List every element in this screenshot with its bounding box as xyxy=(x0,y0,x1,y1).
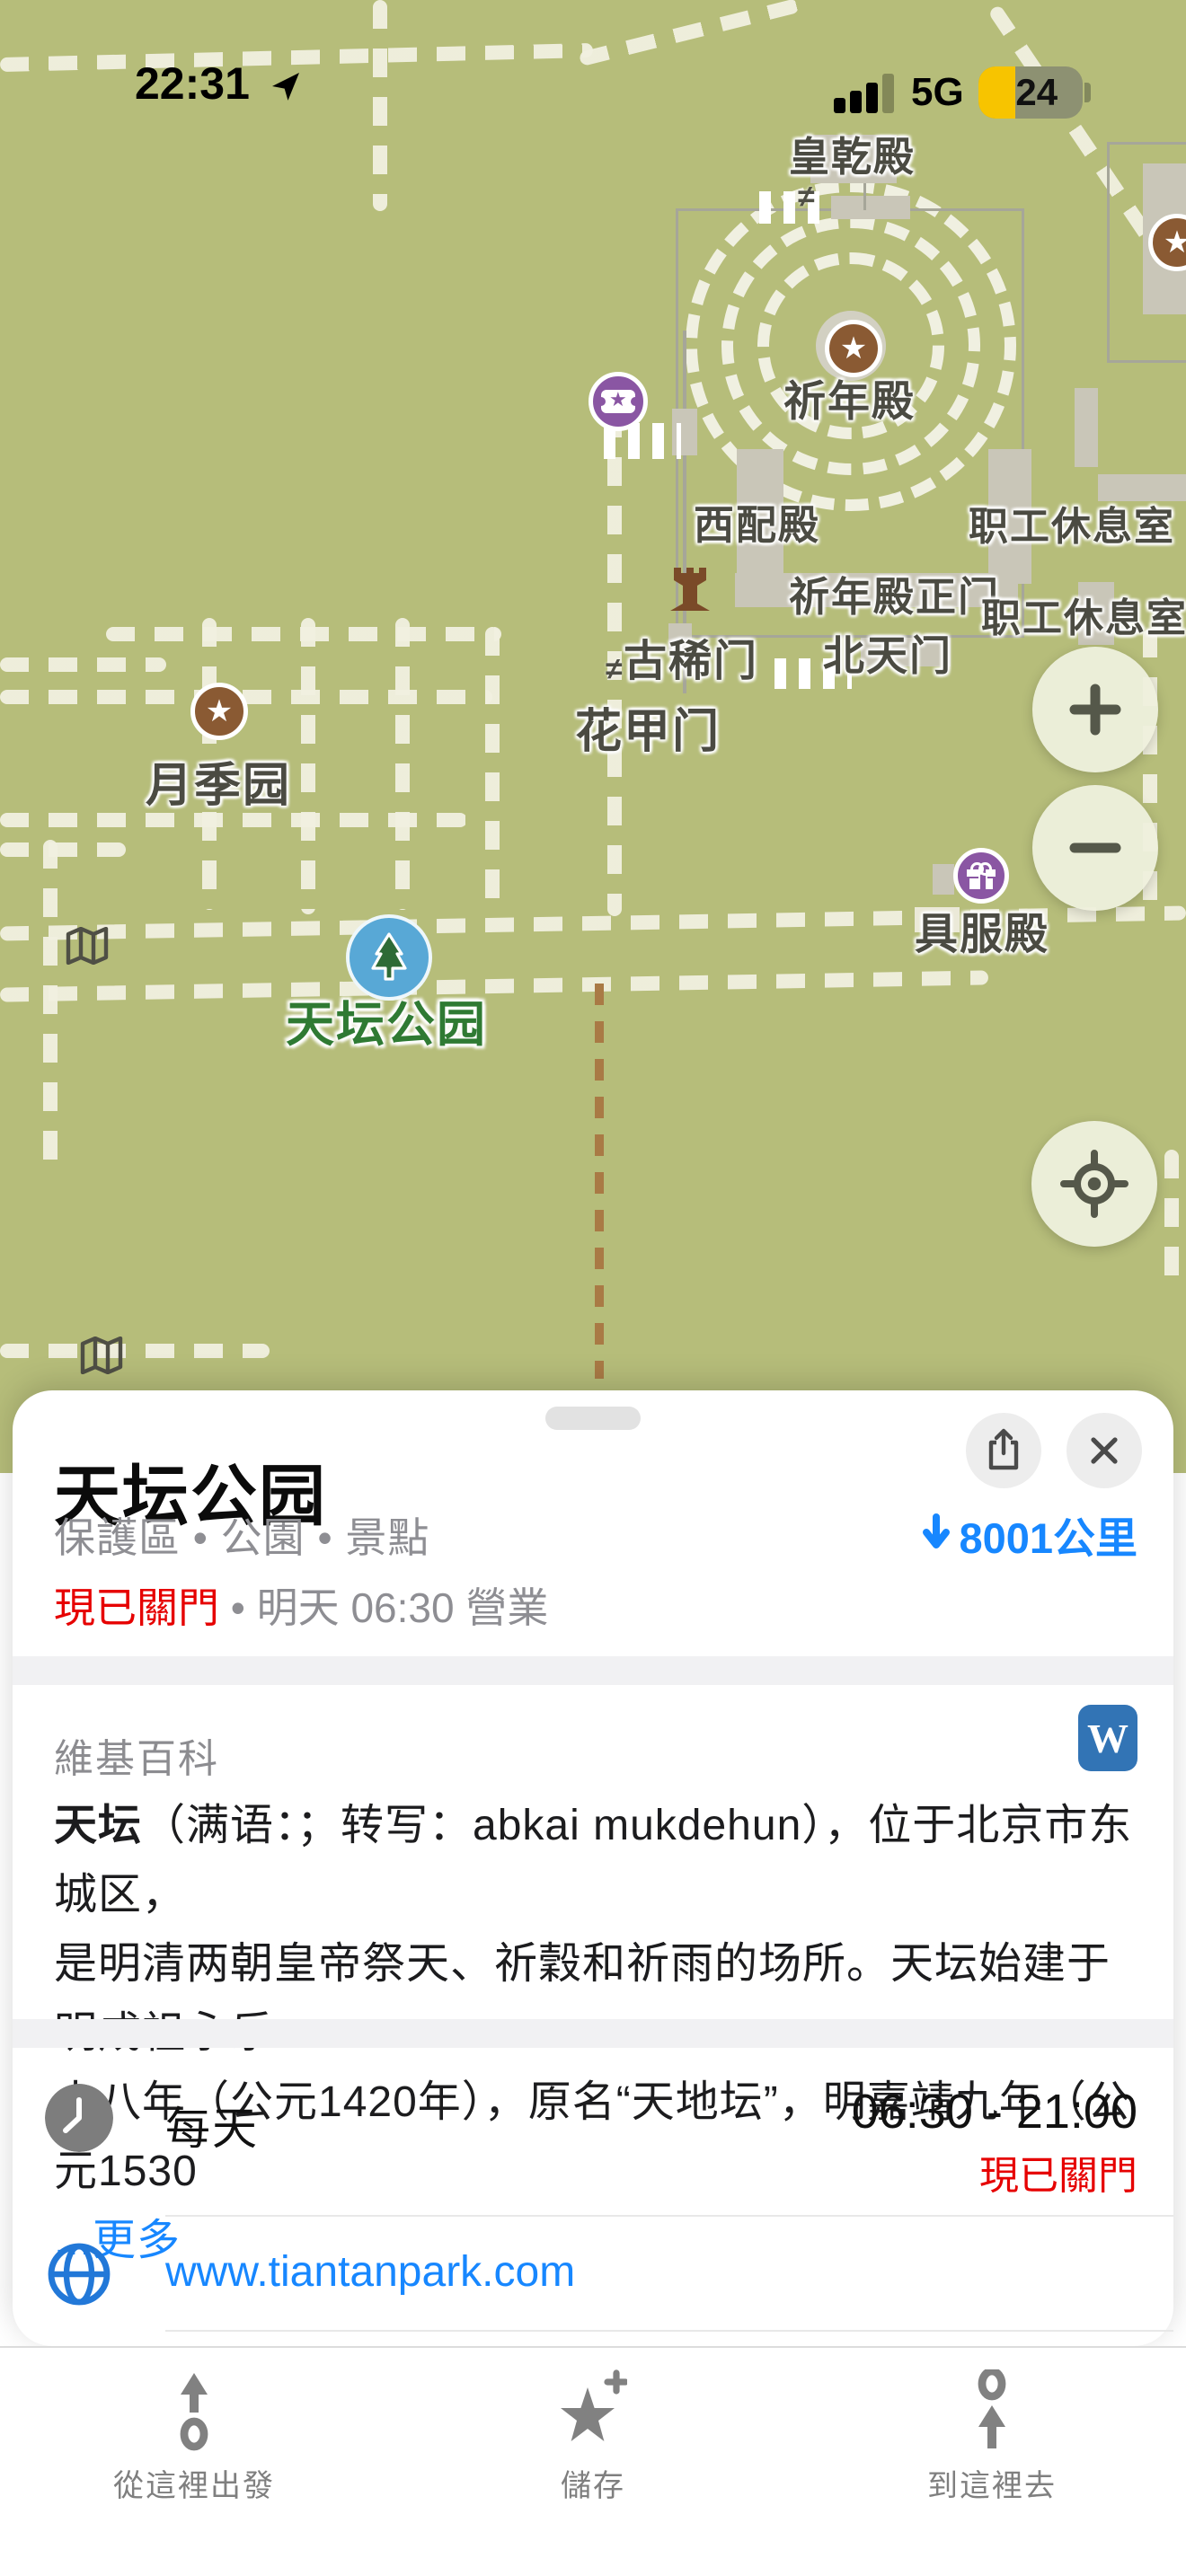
map-canvas[interactable]: ★ ★ ★ ★ ≠ ≠ 皇乾殿 祈年殿 西配殿 xyxy=(0,0,1186,1473)
zoom-out-button[interactable] xyxy=(1032,785,1158,911)
save-star-icon xyxy=(559,2369,627,2452)
row-divider xyxy=(165,2215,1173,2217)
map-label: 月季园 xyxy=(146,747,291,815)
close-icon xyxy=(1086,1433,1122,1469)
clock-icon xyxy=(45,2084,113,2152)
drag-handle[interactable] xyxy=(545,1407,641,1430)
hours-day-label: 每天 xyxy=(165,2093,259,2157)
map-board-icon xyxy=(79,1337,124,1374)
tower-icon xyxy=(667,564,713,614)
depart-icon xyxy=(166,2369,222,2452)
temple-gate-icon: ≠ xyxy=(606,652,623,687)
section-separator xyxy=(13,2019,1173,2048)
map-label: 具服殿 xyxy=(915,898,1049,961)
zoom-in-button[interactable] xyxy=(1032,647,1158,772)
opens-info-text: 明天 06:30 營業 xyxy=(257,1584,549,1631)
gps-target-icon xyxy=(1060,1150,1128,1218)
map-path xyxy=(485,627,500,910)
directions-from-here-button[interactable]: 從這裡出發 xyxy=(77,2369,311,2505)
arrive-icon xyxy=(964,2369,1020,2452)
poi-gift-shop[interactable] xyxy=(953,848,1009,904)
network-type: 5G xyxy=(911,70,964,115)
battery-nub xyxy=(1084,83,1091,102)
battery-percent: 24 xyxy=(978,66,1083,119)
map-path xyxy=(0,842,126,857)
poi-ticket-office[interactable]: ★ xyxy=(589,372,648,431)
save-button[interactable]: 儲存 xyxy=(476,2369,710,2505)
distance-arrow-icon xyxy=(921,1513,951,1557)
poi-rose-garden[interactable]: ★ xyxy=(190,683,248,740)
gift-icon xyxy=(967,862,996,889)
map-road xyxy=(863,183,866,210)
map-path xyxy=(0,970,988,1001)
ticket-icon: ★ xyxy=(601,390,635,413)
signal-bars-icon xyxy=(834,72,898,113)
place-category: 保護區 • 公園 • 景點 xyxy=(54,1505,429,1565)
distance-badge: 8001公里 xyxy=(921,1504,1137,1566)
globe-icon xyxy=(45,2240,113,2308)
map-label: 祈年殿正门 xyxy=(789,564,1000,622)
minus-icon xyxy=(1066,818,1125,878)
map-path xyxy=(373,0,387,211)
map-path xyxy=(43,840,58,1172)
map-label: 北天门 xyxy=(823,623,952,683)
building xyxy=(933,864,954,895)
tree-icon xyxy=(367,932,411,983)
locate-button[interactable] xyxy=(1031,1121,1157,1247)
map-label: 花甲门 xyxy=(575,693,721,761)
wikipedia-icon[interactable]: W xyxy=(1078,1705,1137,1771)
open-status-line: 現已關門 • 明天 06:30 營業 xyxy=(54,1575,548,1635)
hours-time-range: 06:30 - 21:00 xyxy=(852,2084,1137,2139)
distance-value: 8001公里 xyxy=(959,1504,1137,1566)
map-trail xyxy=(595,984,604,1379)
section-separator xyxy=(13,1656,1173,1685)
map-path xyxy=(1164,1150,1179,1284)
wikipedia-header: 維基百科 xyxy=(54,1726,219,1784)
share-button[interactable] xyxy=(966,1413,1041,1488)
park-name-label: 天坛公园 xyxy=(286,984,487,1055)
share-icon xyxy=(984,1428,1023,1473)
closed-now-text: 現已關門 xyxy=(54,1584,219,1631)
wiki-line: 天坛（满语：；转写：abkai mukdehun），位于北京市东城区， xyxy=(54,1791,1143,1929)
hours-closed-status: 現已關門 xyxy=(979,2143,1137,2201)
map-path xyxy=(301,618,315,914)
status-time: 22:31 xyxy=(135,57,304,110)
map-path xyxy=(0,813,467,827)
map-label: 职工休息室 xyxy=(981,586,1186,643)
place-card: 天坛公园 保護區 • 公園 • 景點 8001公里 現已關門 • 明天 06:3… xyxy=(13,1390,1173,2346)
row-divider xyxy=(165,2330,1173,2332)
map-path xyxy=(0,657,166,672)
website-link[interactable]: www.tiantanpark.com xyxy=(165,2247,575,2297)
map-label: 祈年殿 xyxy=(783,366,916,428)
bottom-toolbar: 從這裡出發 儲存 到這裡去 xyxy=(0,2348,1186,2576)
map-board-icon xyxy=(65,927,110,965)
close-button[interactable] xyxy=(1067,1413,1142,1488)
map-label: 皇乾殿 xyxy=(789,124,916,182)
temple-gate-icon: ≠ xyxy=(798,180,815,215)
map-path xyxy=(0,1344,270,1358)
status-right-cluster: 5G 24 xyxy=(834,66,1091,119)
map-path xyxy=(106,627,501,641)
plus-icon xyxy=(1066,680,1125,739)
building xyxy=(1075,388,1098,467)
building xyxy=(831,196,910,219)
location-arrow-icon xyxy=(268,68,304,104)
map-label: 西配殿 xyxy=(694,492,820,551)
map-path xyxy=(579,0,800,66)
map-path xyxy=(395,618,410,910)
battery-icon: 24 xyxy=(978,66,1083,119)
map-label: 古稀门 xyxy=(624,625,758,688)
toolbar-label: 到這裡去 xyxy=(927,2461,1057,2505)
map-label: 职工休息室 xyxy=(969,494,1175,551)
toolbar-label: 儲存 xyxy=(561,2461,625,2505)
toolbar-label: 從這裡出發 xyxy=(113,2461,275,2505)
directions-to-here-button[interactable]: 到這裡去 xyxy=(875,2369,1109,2505)
